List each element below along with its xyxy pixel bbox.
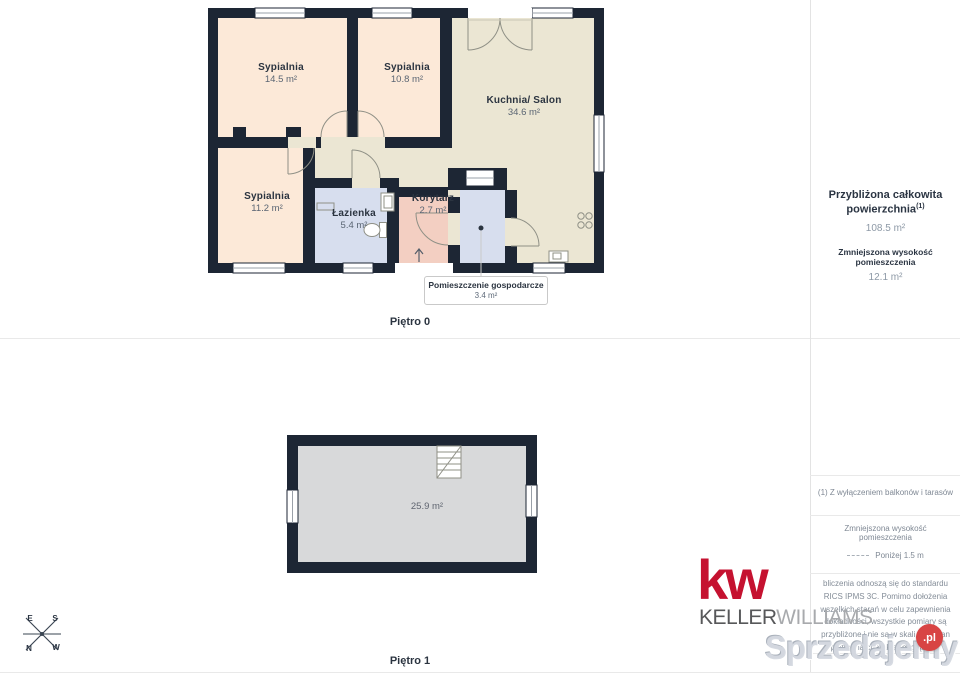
compass-icon: E S N W <box>23 614 61 653</box>
legend-value: Poniżej 1.5 m <box>875 551 923 560</box>
floor1-label: Piętro 1 <box>390 655 430 667</box>
compass-n-label: N <box>26 644 32 653</box>
reduced-height-title: Zmniejszona wysokość pomieszczenia <box>811 247 960 267</box>
room-label-sypialnia-3: Sypialnia 11.2 m² <box>244 191 290 214</box>
keller-williams-wordmark: KELLERWILLIAMS <box>699 606 873 630</box>
room-label-lazienka: Łazienka 5.4 m² <box>332 208 376 231</box>
room-label-attic: 25.9 m² <box>411 500 443 512</box>
watermark-pl-badge: .pl <box>916 624 943 651</box>
compass-w-label: W <box>52 643 60 652</box>
legend-row: Poniżej 1.5 m <box>811 551 960 560</box>
row-divider-1 <box>0 338 960 339</box>
compass-e-label: E <box>27 614 33 623</box>
total-area-value: 108.5 m² <box>811 223 960 234</box>
room-label-sypialnia-1: Sypialnia 14.5 m² <box>258 62 304 85</box>
sidebar-divider-2 <box>810 515 960 516</box>
sidebar-divider-1 <box>810 475 960 476</box>
row-divider-2 <box>0 672 960 673</box>
dashed-line-icon <box>847 555 869 556</box>
kw-logo: kw <box>697 552 766 608</box>
room-label-korytarz: Korytarz 2.7 m² <box>412 193 454 216</box>
utility-room-callout: Pomieszczenie gospodarcze 3.4 m² <box>424 276 548 305</box>
floorplan-page: E S N W Sypialnia 14.5 m² Sypialnia 10.8… <box>0 0 960 679</box>
room-label-kuchnia-salon: Kuchnia/ Salon 34.6 m² <box>486 95 561 118</box>
sidebar-divider-3 <box>810 573 960 574</box>
bathroom-sink-icon <box>381 193 394 211</box>
floor0-label: Piętro 0 <box>390 316 430 328</box>
sidebar-summary: Przybliżona całkowita powierzchnia(1) 10… <box>811 188 960 283</box>
legend-title: Zmniejszona wysokość pomieszczenia <box>811 524 960 542</box>
floor0-plan <box>208 8 604 276</box>
room-label-sypialnia-2: Sypialnia 10.8 m² <box>384 62 430 85</box>
sidebar-footnote: (1) Z wyłączeniem balkonów i tarasów <box>811 488 960 497</box>
stairs-icon <box>437 446 461 478</box>
total-area-title: Przybliżona całkowita powierzchnia(1) <box>811 188 960 217</box>
sidebar-border <box>810 0 811 672</box>
kitchen-sink-icon <box>549 251 568 262</box>
reduced-height-value: 12.1 m² <box>811 272 960 283</box>
sidebar-legend: Zmniejszona wysokość pomieszczenia Poniż… <box>811 524 960 560</box>
compass-s-label: S <box>52 614 58 623</box>
